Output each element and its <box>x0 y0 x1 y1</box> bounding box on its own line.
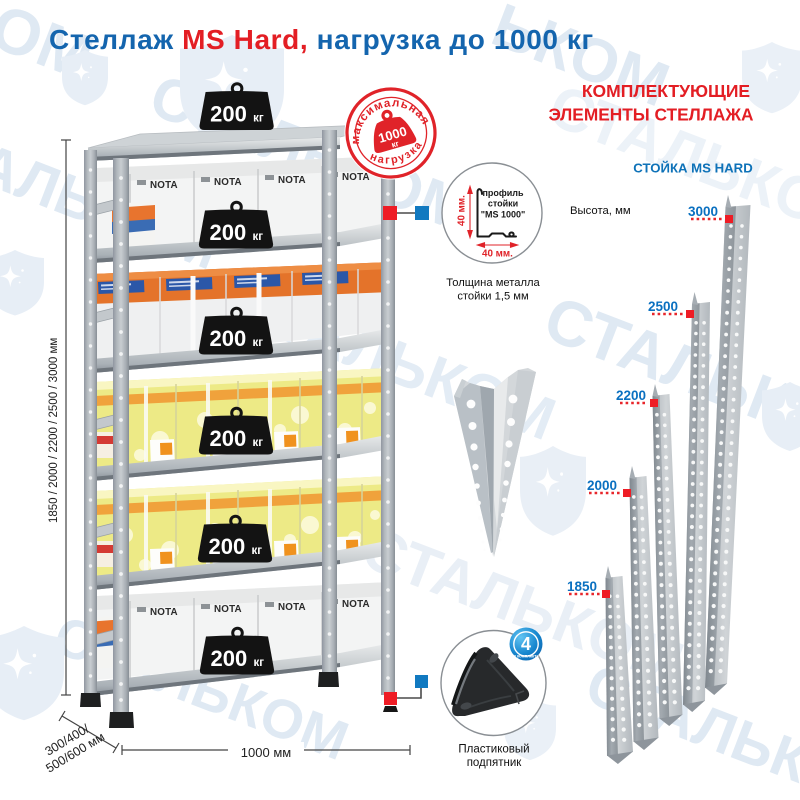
svg-text:кг: кг <box>254 657 265 669</box>
svg-text:NOTA: NOTA <box>150 180 178 191</box>
svg-text:1000 мм: 1000 мм <box>241 745 291 760</box>
svg-text:кг: кг <box>253 231 264 243</box>
svg-text:NOTA: NOTA <box>278 602 306 613</box>
svg-text:3000: 3000 <box>688 204 718 219</box>
svg-text:4: 4 <box>521 634 531 654</box>
svg-text:200: 200 <box>210 426 247 451</box>
svg-text:1850 / 2000 / 2200 / 2500 / 30: 1850 / 2000 / 2200 / 2500 / 3000 мм <box>48 338 60 523</box>
svg-text:кг: кг <box>253 113 264 125</box>
svg-text:в комплекте: в комплекте <box>513 654 539 659</box>
svg-text:кг: кг <box>252 545 263 557</box>
svg-text:подпятник: подпятник <box>467 757 523 769</box>
svg-text:1850: 1850 <box>567 579 597 594</box>
svg-text:кг: кг <box>253 437 264 449</box>
svg-text:NOTA: NOTA <box>214 177 242 188</box>
svg-text:200: 200 <box>209 534 246 559</box>
svg-text:NOTA: NOTA <box>342 172 370 183</box>
svg-text:200: 200 <box>211 646 248 671</box>
svg-text:Толщина металла: Толщина металла <box>446 277 540 289</box>
svg-text:стойки 1,5 мм: стойки 1,5 мм <box>457 291 528 303</box>
svg-text:профиль: профиль <box>482 188 524 198</box>
svg-text:2200: 2200 <box>616 388 646 403</box>
svg-text:200: 200 <box>210 102 247 127</box>
svg-text:NOTA: NOTA <box>342 599 370 610</box>
svg-text:NOTA: NOTA <box>214 604 242 615</box>
svg-text:Высота, мм: Высота, мм <box>570 205 631 217</box>
svg-text:Стеллаж MS Hard, нагрузка до 1: Стеллаж MS Hard, нагрузка до 1000 кг <box>49 24 594 55</box>
svg-text:NOTA: NOTA <box>278 175 306 186</box>
svg-text:200: 200 <box>210 326 247 351</box>
svg-text:ЭЛЕМЕНТЫ СТЕЛЛАЖА: ЭЛЕМЕНТЫ СТЕЛЛАЖА <box>549 105 754 125</box>
svg-text:КОМПЛЕКТУЮЩИЕ: КОМПЛЕКТУЮЩИЕ <box>582 81 750 101</box>
svg-text:2000: 2000 <box>587 478 617 493</box>
svg-text:NOTA: NOTA <box>150 607 178 618</box>
svg-text:стойки: стойки <box>488 199 518 209</box>
svg-text:40 мм.: 40 мм. <box>457 195 468 226</box>
svg-text:200: 200 <box>210 220 247 245</box>
svg-text:40 мм.: 40 мм. <box>482 249 513 260</box>
svg-text:2500: 2500 <box>648 299 678 314</box>
svg-text:"MS 1000": "MS 1000" <box>481 210 526 220</box>
svg-text:Пластиковый: Пластиковый <box>458 744 529 756</box>
svg-text:СТОЙКА MS HARD: СТОЙКА MS HARD <box>633 161 752 176</box>
svg-text:кг: кг <box>253 337 264 349</box>
